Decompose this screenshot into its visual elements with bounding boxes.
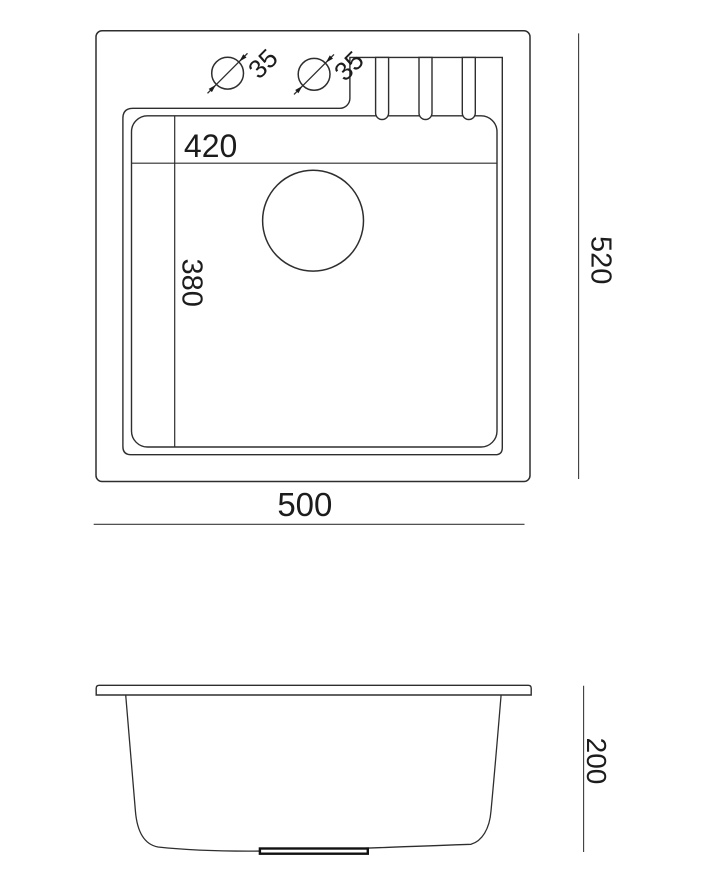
svg-text:380: 380 (176, 258, 208, 306)
svg-text:520: 520 (584, 236, 616, 284)
svg-text:420: 420 (184, 128, 237, 164)
svg-text:35: 35 (328, 45, 370, 87)
svg-text:200: 200 (581, 738, 612, 785)
svg-text:500: 500 (277, 486, 332, 523)
svg-text:35: 35 (242, 43, 284, 85)
